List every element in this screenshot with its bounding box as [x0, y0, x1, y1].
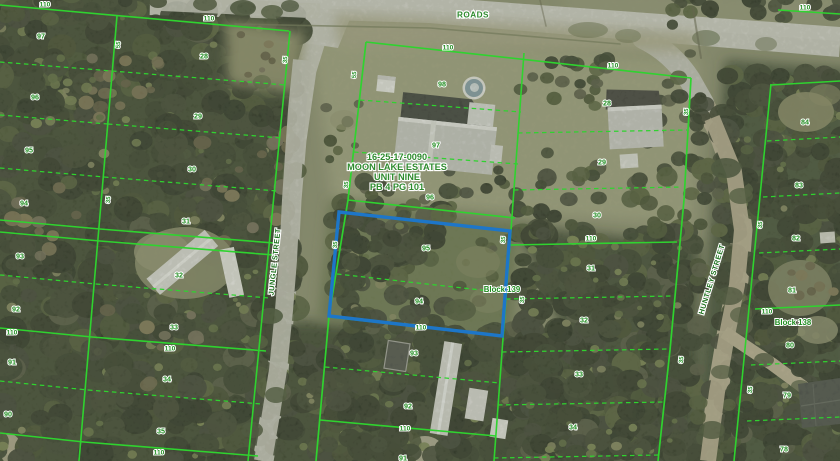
svg-text:110: 110: [7, 329, 18, 336]
svg-text:78: 78: [780, 445, 788, 454]
svg-text:94: 94: [415, 297, 423, 306]
svg-text:110: 110: [154, 449, 165, 456]
svg-text:84: 84: [801, 118, 809, 127]
svg-text:96: 96: [426, 193, 434, 202]
svg-text:35: 35: [344, 181, 351, 189]
svg-text:30: 30: [593, 211, 601, 220]
svg-text:31: 31: [182, 217, 190, 226]
svg-text:97: 97: [432, 141, 440, 150]
svg-text:UNIT NINE: UNIT NINE: [374, 172, 420, 182]
svg-text:Block 139: Block 139: [484, 285, 521, 294]
svg-text:110: 110: [204, 15, 215, 22]
svg-text:82: 82: [792, 234, 800, 243]
svg-text:110: 110: [608, 62, 619, 69]
svg-text:93: 93: [16, 252, 24, 261]
svg-text:110: 110: [416, 324, 427, 331]
svg-text:35: 35: [501, 236, 508, 244]
svg-text:91: 91: [399, 454, 407, 461]
svg-text:31: 31: [587, 264, 595, 273]
svg-text:110: 110: [800, 4, 811, 11]
svg-text:35: 35: [684, 108, 691, 116]
svg-text:35: 35: [283, 56, 290, 64]
svg-text:110: 110: [586, 235, 597, 242]
svg-text:110: 110: [762, 308, 773, 315]
svg-text:35: 35: [157, 427, 165, 436]
svg-text:33: 33: [170, 323, 178, 332]
svg-text:Block 138: Block 138: [775, 318, 812, 327]
svg-text:34: 34: [163, 375, 171, 384]
svg-text:94: 94: [20, 199, 28, 208]
svg-text:35: 35: [520, 296, 527, 304]
svg-text:97: 97: [37, 32, 45, 41]
svg-text:30: 30: [188, 165, 196, 174]
svg-text:35: 35: [679, 356, 686, 364]
svg-text:55: 55: [352, 71, 359, 79]
svg-text:91: 91: [8, 358, 16, 367]
svg-text:28: 28: [603, 99, 611, 108]
svg-text:95: 95: [422, 244, 430, 253]
svg-text:92: 92: [404, 402, 412, 411]
svg-text:35: 35: [748, 386, 755, 394]
svg-text:96: 96: [31, 93, 39, 102]
svg-text:110: 110: [165, 345, 176, 352]
svg-text:79: 79: [783, 391, 791, 400]
svg-text:34: 34: [569, 423, 577, 432]
svg-text:MOON LAKE ESTATES: MOON LAKE ESTATES: [347, 162, 447, 172]
svg-text:92: 92: [12, 305, 20, 314]
svg-text:55: 55: [116, 41, 123, 49]
svg-text:PB 4 PG 101: PB 4 PG 101: [370, 182, 424, 192]
svg-text:16-25-17-0090: 16-25-17-0090: [367, 152, 427, 162]
svg-text:33: 33: [575, 370, 583, 379]
svg-text:29: 29: [598, 158, 606, 167]
svg-text:80: 80: [786, 341, 794, 350]
svg-text:110: 110: [40, 1, 51, 8]
svg-text:95: 95: [25, 146, 33, 155]
svg-text:32: 32: [580, 316, 588, 325]
svg-text:90: 90: [4, 410, 12, 419]
svg-text:28: 28: [200, 52, 208, 61]
svg-text:29: 29: [194, 112, 202, 121]
svg-text:83: 83: [795, 181, 803, 190]
svg-text:110: 110: [400, 425, 411, 432]
svg-text:35: 35: [106, 196, 113, 204]
svg-text:ROADS: ROADS: [457, 11, 489, 20]
svg-text:35: 35: [758, 221, 765, 229]
svg-text:32: 32: [175, 271, 183, 280]
svg-text:35: 35: [333, 241, 340, 249]
svg-text:81: 81: [788, 286, 796, 295]
svg-text:93: 93: [410, 349, 418, 358]
svg-text:98: 98: [438, 80, 446, 89]
svg-text:110: 110: [443, 44, 454, 51]
